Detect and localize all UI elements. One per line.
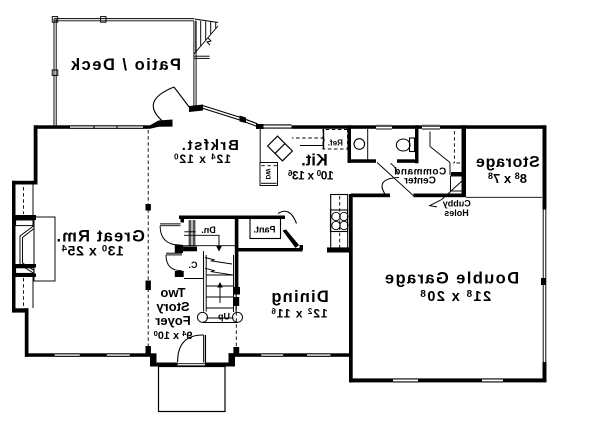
svg-text:Up: Up: [218, 312, 230, 322]
svg-text:Center: Center: [404, 175, 436, 186]
svg-text:124 x 120: 124 x 120: [173, 152, 231, 166]
svg-text:Double Garage: Double Garage: [384, 269, 520, 287]
svg-text:Dining: Dining: [270, 288, 329, 306]
svg-text:130 x 254: 130 x 254: [61, 243, 124, 259]
svg-text:Two: Two: [160, 285, 185, 300]
svg-text:Ref.: Ref.: [328, 139, 343, 148]
svg-text:DW: DW: [264, 168, 271, 180]
svg-text:100 x 136: 100 x 136: [287, 169, 333, 183]
svg-text:Storage: Storage: [475, 154, 539, 171]
svg-text:88 x 78: 88 x 78: [488, 171, 527, 186]
svg-text:C.: C.: [189, 260, 198, 270]
svg-text:Pant.: Pant.: [253, 225, 275, 235]
svg-text:94 x 100: 94 x 100: [154, 329, 193, 342]
svg-text:Holes: Holes: [444, 208, 469, 218]
svg-text:Dn.: Dn.: [201, 225, 216, 235]
svg-text:Kit.: Kit.: [301, 152, 328, 170]
svg-text:Story: Story: [156, 299, 190, 314]
svg-text:218 x 208: 218 x 208: [419, 289, 491, 305]
svg-text:Foyer: Foyer: [155, 313, 190, 328]
svg-text:Patio / Deck: Patio / Deck: [69, 56, 181, 74]
svg-text:122 x 116: 122 x 116: [270, 307, 327, 321]
